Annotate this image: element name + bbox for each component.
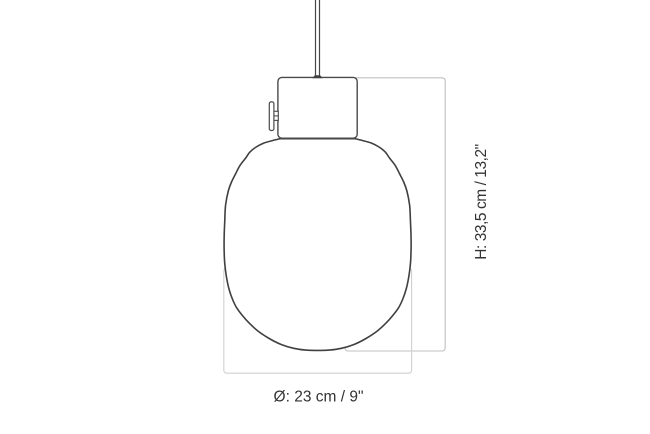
svg-text:H: 33,5 cm / 13,2": H: 33,5 cm / 13,2" xyxy=(473,144,490,259)
svg-text:Ø: 23 cm / 9": Ø: 23 cm / 9" xyxy=(274,389,364,406)
